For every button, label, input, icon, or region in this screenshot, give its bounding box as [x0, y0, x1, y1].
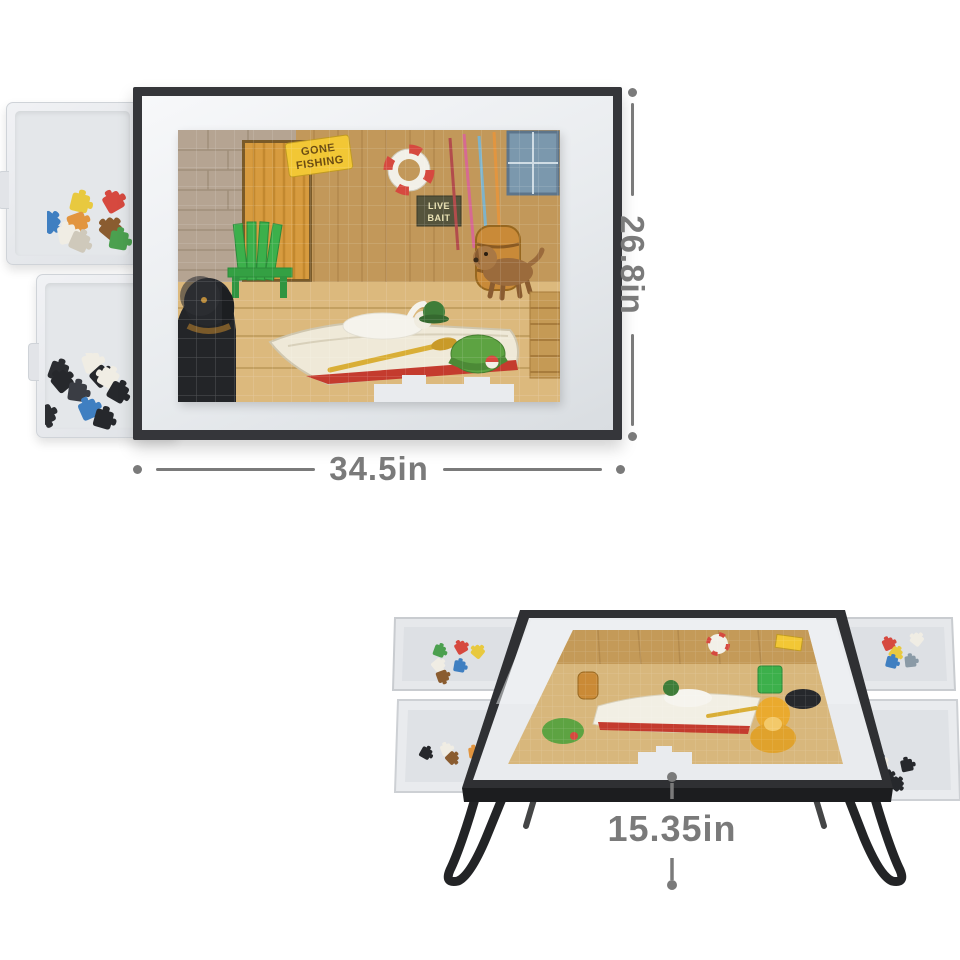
- drawer-pull-tab: [28, 343, 39, 381]
- table-height-label: 15.35in: [607, 808, 736, 849]
- board-height-dimension: 26.8in: [608, 88, 656, 441]
- puzzle-board: GONE FISHING LIVE BAIT: [133, 87, 622, 440]
- dimension-line: [443, 468, 602, 471]
- dimension-endpoint-dot: [628, 432, 637, 441]
- dimension-endpoint-dot: [628, 88, 637, 97]
- tabletop: [462, 610, 893, 802]
- board-width-label: 34.5in: [329, 450, 429, 488]
- puzzle-table: 15.35in: [388, 586, 960, 906]
- drawer-pull-tab: [0, 171, 9, 209]
- board-dimensions-panel: GONE FISHING LIVE BAIT: [0, 0, 700, 520]
- product-infographic: GONE FISHING LIVE BAIT: [0, 0, 960, 960]
- puzzle-pieces-cluster: [47, 183, 132, 258]
- board-mat: GONE FISHING LIVE BAIT: [142, 96, 613, 430]
- weight-panel: 9.6 LBS: [690, 100, 935, 425]
- dimension-line: [156, 468, 315, 471]
- dimension-endpoint-dot: [616, 465, 625, 474]
- puzzle-illustration: GONE FISHING LIVE BAIT: [178, 130, 560, 402]
- board-drawer-top: [6, 102, 139, 265]
- dimension-endpoint-dot: [133, 465, 142, 474]
- table-panel: 15.35in: [386, 584, 960, 909]
- board-height-label: 26.8in: [613, 215, 651, 315]
- puzzle-image: GONE FISHING LIVE BAIT: [178, 130, 560, 402]
- trays-panel: 15.6in 11.8in: [0, 538, 400, 960]
- puzzle-grid-overlay: [178, 130, 560, 402]
- board-width-dimension: 34.5in: [133, 450, 625, 488]
- dimension-line: [631, 334, 634, 427]
- dimension-line: [631, 103, 634, 196]
